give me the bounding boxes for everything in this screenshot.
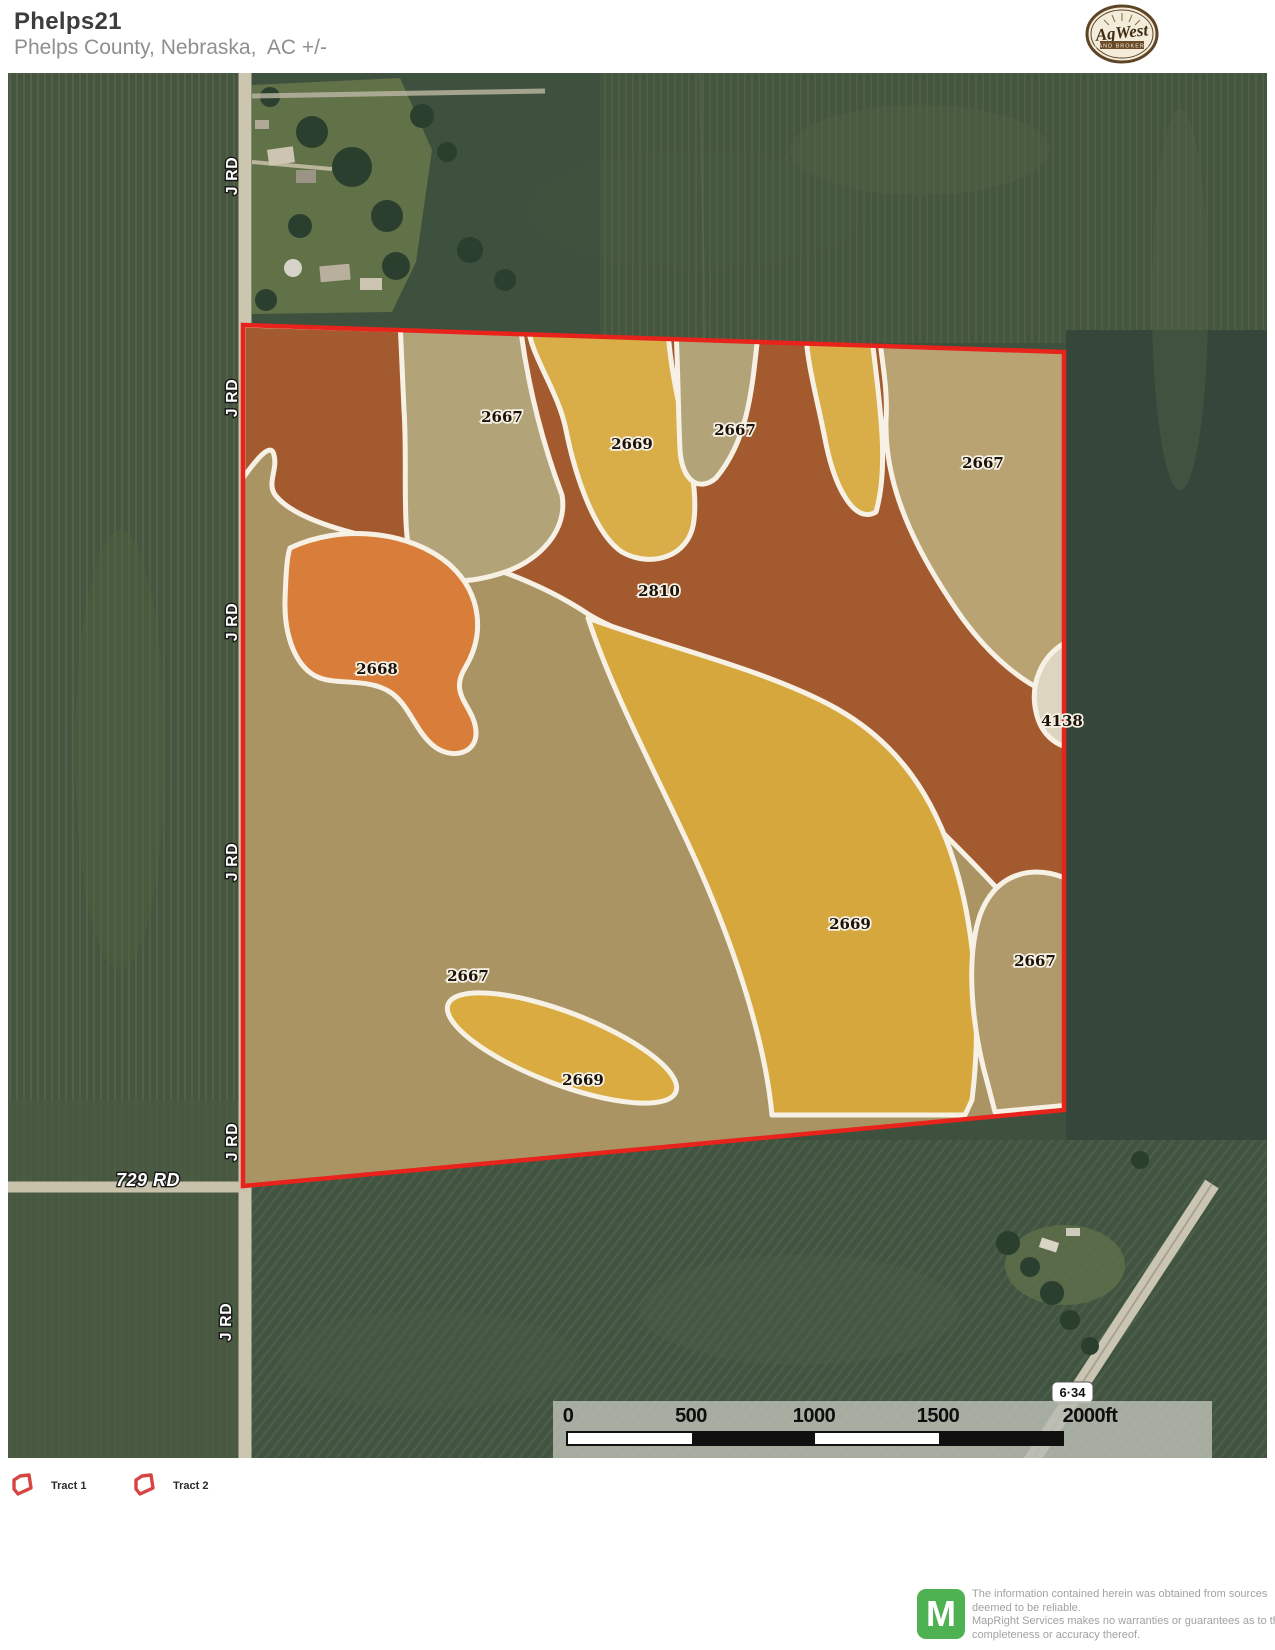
road-label-j-rd: J RD xyxy=(224,379,241,417)
soil-label: 2667 xyxy=(1014,952,1056,970)
soil-label: 2667 xyxy=(962,454,1004,472)
soil-zone-2667-bottomright xyxy=(972,872,1070,1112)
scale-tick: 500 xyxy=(675,1405,707,1428)
road-label-729-rd: 729 RD xyxy=(116,1170,180,1190)
scale-bar: 0 500 1000 1500 2000ft xyxy=(553,1401,1212,1458)
soil-label: 2669 xyxy=(829,915,871,933)
scale-tick: 2000ft xyxy=(1063,1405,1118,1428)
disclaimer-line: deemed to be reliable. xyxy=(972,1602,1272,1616)
disclaimer-line: MapRight Services makes no warranties or… xyxy=(972,1615,1272,1629)
tract-1-icon xyxy=(10,1472,35,1499)
legend-label: Tract 2 xyxy=(173,1480,208,1492)
road-label-j-rd: J RD xyxy=(224,843,241,881)
legend-label: Tract 1 xyxy=(51,1480,86,1492)
soil-label: 2668 xyxy=(356,660,398,678)
road-label-j-rd: J RD xyxy=(224,603,241,641)
scale-tick: 1500 xyxy=(917,1405,960,1428)
road-label-j-rd: J RD xyxy=(218,1303,235,1341)
soil-label: 2667 xyxy=(714,421,756,439)
legend-item-tract-2: Tract 2 xyxy=(132,1472,208,1499)
highway-shield: 6·34 xyxy=(1052,1382,1093,1403)
scale-bar-segments xyxy=(566,1431,1064,1446)
soil-label: 2669 xyxy=(562,1071,604,1089)
tract-2-icon xyxy=(132,1472,157,1499)
scale-tick: 1000 xyxy=(793,1405,836,1428)
legend-item-tract-1: Tract 1 xyxy=(10,1472,86,1499)
highway-shield-label: 6·34 xyxy=(1059,1385,1086,1400)
mapright-logo: M xyxy=(917,1589,965,1639)
road-label-j-rd: J RD xyxy=(224,1123,241,1161)
soil-label: 2810 xyxy=(638,582,680,600)
disclaimer-line: The information contained herein was obt… xyxy=(972,1588,1272,1602)
scale-tick: 0 xyxy=(563,1405,574,1428)
soil-label: 2667 xyxy=(481,408,523,426)
soil-label: 2667 xyxy=(447,967,489,985)
soil-label: 4138 xyxy=(1041,712,1083,730)
page: Phelps21 Phelps County, Nebraska, AC +/-… xyxy=(0,0,1275,1650)
disclaimer-line: completeness or accuracy thereof. xyxy=(972,1629,1272,1643)
disclaimer: The information contained herein was obt… xyxy=(972,1588,1272,1642)
road-label-j-rd: J RD xyxy=(224,157,241,195)
soil-label: 2669 xyxy=(611,435,653,453)
